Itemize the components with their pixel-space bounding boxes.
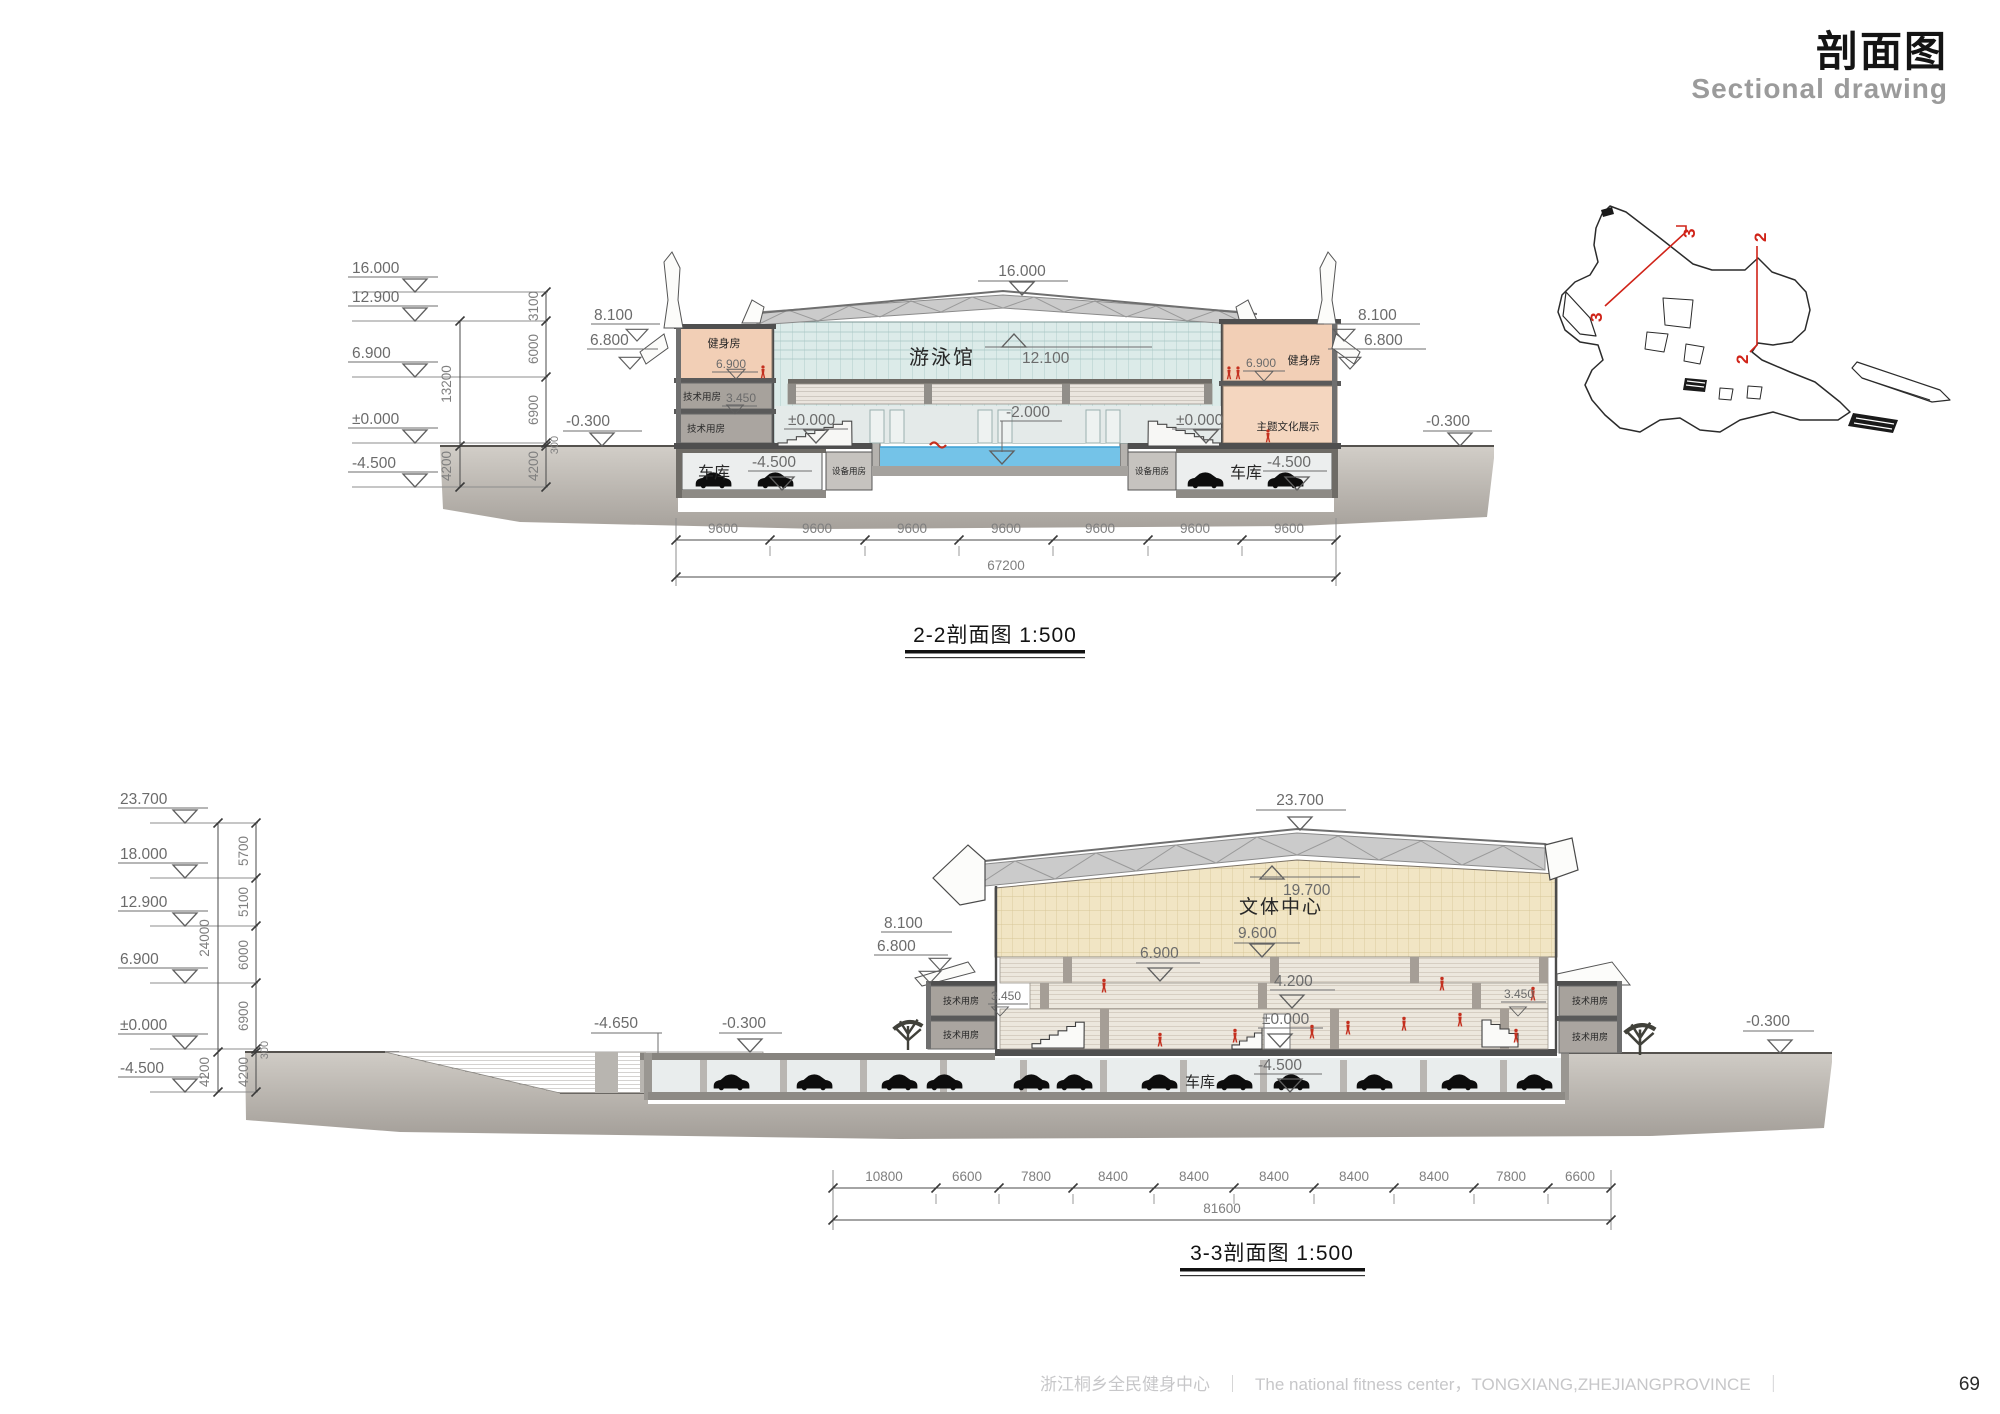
dimension-chain-bottom: 10800 6600 7800 8400 8400 8400 8400 8400… xyxy=(829,1169,1616,1230)
marker-12100: 12.100 xyxy=(1022,350,1070,367)
svg-text:3-3剖面图 1:500: 3-3剖面图 1:500 xyxy=(1190,1242,1354,1265)
elevation-stack-left: 23.700 18.000 12.900 6.900 ±0.000 -4.500… xyxy=(118,791,271,1097)
section-3-3-drawing: -4.650 -0.300 23.700 18.000 12.900 xyxy=(90,770,1850,1290)
section-3-label-top: 3 xyxy=(1680,229,1699,238)
marker-m4500-left: -4.500 xyxy=(752,454,796,471)
dim-7800-l: 7800 xyxy=(1021,1169,1051,1184)
keyplan-hatches xyxy=(1601,207,1898,433)
marker-9600: 9.600 xyxy=(1238,925,1277,942)
vdim-6000: 6000 xyxy=(236,940,251,970)
dim-9600-4: 9600 xyxy=(991,521,1021,536)
garage-label: 车库 xyxy=(1185,1074,1215,1091)
marker-16000: 16.000 xyxy=(998,263,1046,280)
section-3-label-bottom: 3 xyxy=(1587,313,1606,322)
section-2-label-top: 2 xyxy=(1751,233,1770,242)
title-block: 剖面图 Sectional drawing xyxy=(1691,30,1948,103)
marker-0-left: ±0.000 xyxy=(788,412,836,429)
marker-23700: 23.700 xyxy=(1276,792,1324,809)
dimension-chain-bottom: 9600 9600 9600 9600 9600 9600 9600 67200 xyxy=(672,518,1341,586)
sports-center-label: 文体中心 xyxy=(1239,896,1323,918)
footer-project-en: The national fitness center，TONGXIANG,ZH… xyxy=(1255,1370,1751,1395)
garage-left-label: 车库 xyxy=(698,464,730,482)
dim-8400-3: 8400 xyxy=(1259,1169,1289,1184)
dim-total-67200: 67200 xyxy=(987,558,1025,573)
marker-4200: 4.200 xyxy=(1274,973,1313,990)
marker-m0300-right: -0.300 xyxy=(1743,1013,1814,1053)
marker-3450-left: 3.450 xyxy=(991,989,1021,1003)
vdim-3100: 3100 xyxy=(526,291,541,321)
dim-9600-2: 9600 xyxy=(802,521,832,536)
dim-6600-l: 6600 xyxy=(952,1169,982,1184)
sheet-title-cn: 剖面图 xyxy=(1691,30,1948,74)
caption-3-3: 3-3剖面图 1:500 xyxy=(1180,1242,1365,1276)
level-0: ±0.000 xyxy=(120,1017,168,1034)
level-18000: 18.000 xyxy=(120,846,168,863)
dim-9600-7: 9600 xyxy=(1274,521,1304,536)
marker-m4650: -4.650 xyxy=(594,1015,638,1032)
section-line-3 xyxy=(1605,226,1686,306)
page-number: 69 xyxy=(1959,1374,1980,1396)
marker-6900-right: 6.900 xyxy=(1246,356,1276,370)
level-12900: 12.900 xyxy=(120,894,168,911)
marker-6800: 6.800 xyxy=(877,938,916,955)
vdim-4200a: 4200 xyxy=(439,451,454,481)
marker-0-right: ±0.000 xyxy=(1176,412,1224,429)
sheet-title-en: Sectional drawing xyxy=(1691,74,1948,103)
gym-left-label: 健身房 xyxy=(708,336,741,350)
marker-m2000: -2.000 xyxy=(1006,404,1050,421)
level-0: ±0.000 xyxy=(352,411,400,428)
caption-2-2: 2-2剖面图 1:500 xyxy=(905,624,1085,658)
marker-8100-right: 8.100 xyxy=(1358,307,1397,324)
marker-m0300-right: -0.300 xyxy=(1423,413,1492,446)
dim-10800: 10800 xyxy=(865,1169,903,1184)
svg-text:-0.300: -0.300 xyxy=(1426,413,1470,430)
roof-truss: 16.000 xyxy=(742,263,1258,325)
marker-m0300-left: -0.300 xyxy=(563,413,642,446)
marker-0: ±0.000 xyxy=(1262,1011,1310,1028)
marker-3450-right: 3.450 xyxy=(1504,987,1534,1001)
dim-9600-5: 9600 xyxy=(1085,521,1115,536)
drawing-sheet: 剖面图 Sectional drawing xyxy=(0,0,2000,1414)
svg-text:2-2剖面图 1:500: 2-2剖面图 1:500 xyxy=(913,624,1077,647)
marker-3450: 3.450 xyxy=(726,391,756,405)
footer-project-cn: 浙江桐乡全民健身中心 xyxy=(1040,1370,1210,1395)
marker-8100: 8.100 xyxy=(884,915,923,932)
svg-text:-0.300: -0.300 xyxy=(566,413,610,430)
level-m4500: -4.500 xyxy=(352,455,396,472)
tech-room-label: 技术用房 xyxy=(1572,995,1608,1006)
footer-divider: ｜ xyxy=(1224,1370,1241,1395)
vdim-6900: 6900 xyxy=(526,395,541,425)
vdim-300: 300 xyxy=(549,436,561,454)
garage: 车库 -4.500 xyxy=(640,1049,1569,1100)
level-16000: 16.000 xyxy=(352,260,400,277)
vdim-4200a: 4200 xyxy=(197,1057,212,1087)
marker-m4500-right: -4.500 xyxy=(1267,454,1311,471)
marker-6800-left: 6.800 xyxy=(590,332,629,349)
tech-room-2-label: 技术用房 xyxy=(687,423,725,435)
svg-text:-0.300: -0.300 xyxy=(1746,1013,1790,1030)
tech-room-label: 技术用房 xyxy=(943,1029,979,1040)
level-6900: 6.900 xyxy=(352,345,391,362)
vdim-300: 300 xyxy=(259,1041,271,1059)
dim-6600-r: 6600 xyxy=(1565,1169,1595,1184)
marker-8100-left: 8.100 xyxy=(594,307,633,324)
marker-6800-right: 6.800 xyxy=(1364,332,1403,349)
vdim-5100: 5100 xyxy=(236,887,251,917)
tech-room-label: 技术用房 xyxy=(943,995,979,1006)
dim-8400-1: 8400 xyxy=(1098,1169,1128,1184)
equip-left-label: 设备用房 xyxy=(832,466,866,476)
section-2-label-bottom: 2 xyxy=(1733,355,1752,364)
dim-total-81600: 81600 xyxy=(1203,1201,1241,1216)
sports-center-hall: 19.700 文体中心 9.600 6.900 4.200 ±0.000 xyxy=(995,860,1557,1053)
dim-9600-3: 9600 xyxy=(897,521,927,536)
dim-9600-1: 9600 xyxy=(708,521,738,536)
vdim-4200b: 4200 xyxy=(526,451,541,481)
dim-8400-4: 8400 xyxy=(1339,1169,1369,1184)
tech-room-1-label: 技术用房 xyxy=(683,391,721,403)
vdim-5700: 5700 xyxy=(236,836,251,866)
pool-hall: 游泳馆 12.100 -2.000 ±0.000 ±0.000 xyxy=(772,322,1238,464)
tech-room-label: 技术用房 xyxy=(1572,1031,1608,1042)
garage-right-label: 车库 xyxy=(1230,464,1262,482)
pool-water xyxy=(880,447,1120,466)
footer: 浙江桐乡全民健身中心 ｜ The national fitness center… xyxy=(1040,1370,1980,1396)
dim-8400-5: 8400 xyxy=(1419,1169,1449,1184)
vdim-4200b: 4200 xyxy=(236,1057,251,1087)
marker-6900: 6.900 xyxy=(1140,945,1179,962)
equip-right-label: 设备用房 xyxy=(1135,466,1169,476)
tree-left xyxy=(894,1020,923,1050)
level-m4500: -4.500 xyxy=(120,1060,164,1077)
dim-9600-6: 9600 xyxy=(1180,521,1210,536)
gym-right-label: 健身房 xyxy=(1288,353,1321,367)
section-2-2-drawing: 16.000 12.900 6.900 ±0.000 -4.500 13200 … xyxy=(330,185,1550,685)
culture-room-label: 主题文化展示 xyxy=(1257,420,1320,433)
level-23700: 23.700 xyxy=(120,791,168,808)
tree-right xyxy=(1625,1023,1656,1055)
vdim-24000: 24000 xyxy=(197,919,212,957)
marker-m0300-mid: -0.300 xyxy=(722,1015,766,1032)
wing-left: 健身房 6.900 技术用房 3.450 技术用房 8.100 6.800 xyxy=(587,252,776,449)
vdim-6900: 6900 xyxy=(236,1001,251,1031)
dim-7800-r: 7800 xyxy=(1496,1169,1526,1184)
level-12900: 12.900 xyxy=(352,289,400,306)
level-6900: 6.900 xyxy=(120,951,159,968)
wing-right: 健身房 6.900 主题文化展示 8.100 6.800 xyxy=(1219,252,1426,449)
marker-m4500: -4.500 xyxy=(1258,1057,1302,1074)
vdim-13200: 13200 xyxy=(439,365,454,403)
footer-divider: ｜ xyxy=(1765,1370,1782,1395)
pool-hall-label: 游泳馆 xyxy=(909,346,975,369)
dim-8400-2: 8400 xyxy=(1179,1169,1209,1184)
vdim-6000: 6000 xyxy=(526,334,541,364)
key-plan: 3 3 2 2 xyxy=(1540,180,1970,480)
